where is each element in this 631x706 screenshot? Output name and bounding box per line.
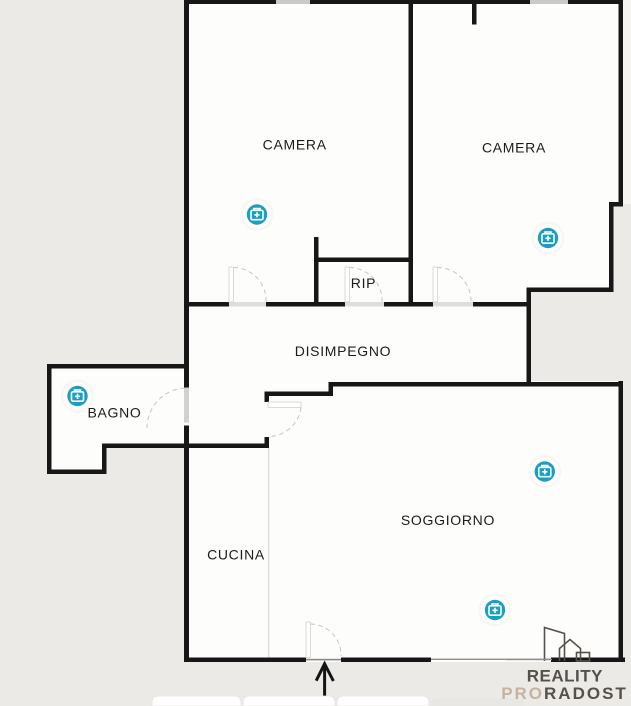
svg-text:PRORADOST: PRORADOST [501,684,628,703]
svg-text:SOGGIORNO: SOGGIORNO [401,512,495,528]
svg-text:CAMERA: CAMERA [263,137,327,153]
svg-text:CUCINA: CUCINA [207,547,265,563]
svg-text:RIP: RIP [351,275,376,291]
svg-text:REALITY: REALITY [527,667,603,686]
svg-text:BAGNO: BAGNO [87,405,141,421]
svg-text:DISIMPEGNO: DISIMPEGNO [295,343,391,359]
svg-text:CAMERA: CAMERA [482,140,546,156]
